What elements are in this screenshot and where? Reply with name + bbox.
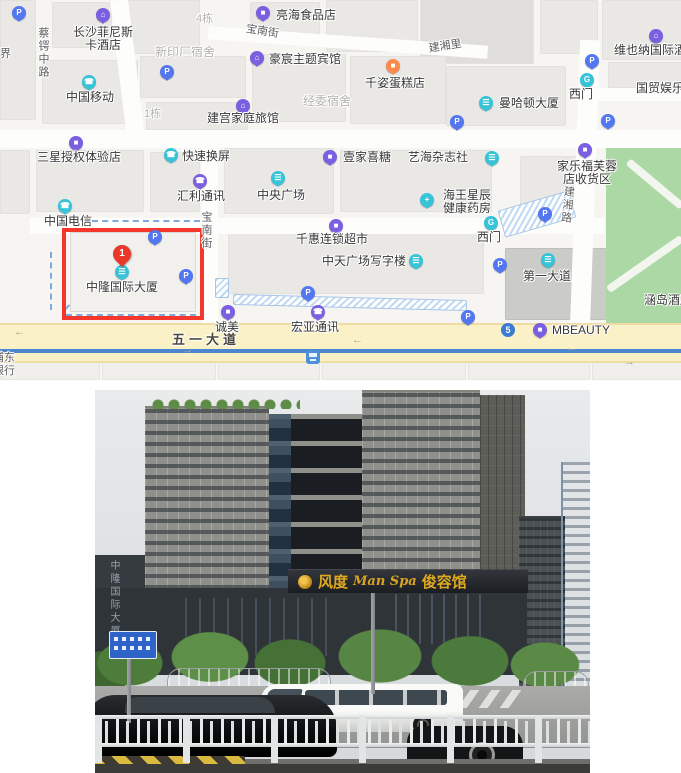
- sign-pole: [127, 657, 131, 723]
- mbeauty-icon[interactable]: ■: [533, 323, 547, 337]
- parking-icon[interactable]: P: [493, 258, 507, 272]
- manhattan-tower-icon[interactable]: ☰: [479, 96, 493, 110]
- roof-plants: [150, 399, 300, 409]
- zhongyang-plaza-icon[interactable]: ☰: [271, 171, 285, 185]
- mbeauty-label[interactable]: MBEAUTY: [552, 324, 610, 337]
- bus-stop-icon[interactable]: [306, 350, 320, 364]
- spa-sign-suffix: 俊容馆: [422, 571, 467, 592]
- zhongyang-plaza-label[interactable]: 中央广场: [257, 189, 305, 202]
- road-arrow: →: [624, 356, 635, 368]
- parking-icon[interactable]: P: [12, 6, 26, 20]
- road-arrow: ←: [352, 334, 363, 346]
- samsung-experience-store-label[interactable]: 三星授权体验店: [37, 151, 121, 164]
- metro-line-5-badge[interactable]: 5: [501, 323, 515, 337]
- van-windows: [305, 690, 447, 705]
- street-photo: 中隆国际大厦 风度 Man Spa 俊容馆: [95, 390, 590, 773]
- china-mobile-icon[interactable]: ☎: [82, 75, 96, 89]
- zhongtian-office-tower-icon[interactable]: ☰: [409, 254, 423, 268]
- map-marker-pin[interactable]: 1: [109, 241, 134, 266]
- area-building-4: 4栋: [196, 13, 213, 26]
- handao-hotel-label[interactable]: 涵岛酒店: [644, 294, 681, 307]
- main-building-left-wing: [145, 406, 269, 598]
- road-arrow: ←: [566, 342, 577, 354]
- sign-text-row: [114, 646, 152, 650]
- haochen-theme-hotel-label[interactable]: 豪宸主题宾馆: [269, 53, 341, 66]
- chengmei-icon[interactable]: ■: [221, 305, 235, 319]
- street-name-sign: [109, 631, 157, 659]
- ximen-gate-north-icon[interactable]: G: [580, 73, 594, 87]
- hongya-comm-label[interactable]: 宏亚通讯: [291, 321, 339, 334]
- street-baonan-vertical: 宝南街: [199, 211, 212, 250]
- lianghai-food-store-icon[interactable]: ■: [256, 6, 270, 20]
- huili-comm-icon[interactable]: ☎: [193, 174, 207, 188]
- jiangong-family-inn-label[interactable]: 建宫家庭旅馆: [207, 112, 279, 125]
- ximen-gate-west-icon[interactable]: G: [484, 216, 498, 230]
- kuaisu-huanping-label[interactable]: 快速换屏: [182, 150, 230, 163]
- spa-sign-band: 风度 Man Spa 俊容馆: [288, 569, 528, 593]
- chengmei-label[interactable]: 诚美: [215, 321, 239, 334]
- qianzi-cake-shop-label[interactable]: 千姿蛋糕店: [365, 77, 425, 90]
- parking-icon[interactable]: P: [148, 230, 162, 244]
- ximen-gate-west-label[interactable]: 西门: [477, 231, 501, 244]
- vienna-international-hotel-label[interactable]: 维也纳国际酒店: [614, 44, 681, 57]
- road-arrow: →: [182, 344, 193, 356]
- sedan-glass: [125, 697, 275, 713]
- area-xinyinchang-dorm: 新印厂宿舍: [155, 46, 215, 59]
- samsung-experience-store-icon[interactable]: ■: [69, 136, 83, 150]
- label-pudong: 浦东: [0, 352, 15, 365]
- yihai-magazine-label[interactable]: 艺海杂志社: [408, 151, 468, 164]
- street-baonan-top: 宝南街: [245, 23, 280, 41]
- lianghai-food-store-label[interactable]: 亮海食品店: [276, 9, 336, 22]
- parking-icon[interactable]: P: [179, 269, 193, 283]
- vertical-building-sign: 中隆国际大厦: [107, 560, 121, 640]
- qianzi-cake-shop-icon[interactable]: ■: [386, 59, 400, 73]
- street-caie-middle-road: 蔡锷中路: [36, 27, 49, 79]
- area-jingwei-dorm: 经委宿舍: [303, 95, 351, 108]
- changsha-feinisi-hotel-icon[interactable]: ⌂: [96, 8, 110, 22]
- china-mobile-label[interactable]: 中国移动: [66, 91, 114, 104]
- kuaisu-huanping-icon[interactable]: ☎: [164, 148, 178, 162]
- manhattan-tower-label[interactable]: 曼哈顿大厦: [499, 97, 559, 110]
- spa-logo-icon: [298, 575, 312, 589]
- spa-sign-script: Man Spa: [353, 574, 417, 589]
- parking-icon[interactable]: P: [301, 286, 315, 300]
- china-telecom-icon[interactable]: ☎: [58, 199, 72, 213]
- parking-icon[interactable]: P: [585, 54, 599, 68]
- zhongtian-office-tower-label[interactable]: 中天广场写字楼: [322, 255, 406, 268]
- guomao-entertainment-label[interactable]: 国贸娱乐: [636, 82, 681, 95]
- poi-layer: ⌂长沙菲尼斯卡酒店■亮海食品店⌂豪宸主题宾馆■千姿蛋糕店⌂维也纳国际酒店☎中国移…: [0, 0, 681, 380]
- qianhui-chain-market-label[interactable]: 千惠连锁超市: [296, 233, 368, 246]
- road-arrow: ←: [14, 326, 25, 338]
- street-jianxiangli: 建湘里: [428, 38, 463, 56]
- ximen-gate-north-label[interactable]: 西门: [569, 88, 593, 101]
- carrefour-furong-pickup-label[interactable]: 家乐福芙蓉店收货区: [556, 160, 618, 186]
- map-panel[interactable]: 5 1 ⌂长沙菲尼斯卡酒店■亮海食品店⌂豪宸主题宾馆■千姿蛋糕店⌂维也纳国际酒店…: [0, 0, 681, 380]
- diyi-dadao-icon[interactable]: ☰: [541, 253, 555, 267]
- label-jie: 界: [0, 48, 11, 61]
- carrefour-furong-pickup-icon[interactable]: ■: [578, 143, 592, 157]
- parking-icon[interactable]: P: [601, 114, 615, 128]
- pedestrian-fence: [95, 715, 590, 767]
- screenshot-root: 5 1 ⌂长沙菲尼斯卡酒店■亮海食品店⌂豪宸主题宾馆■千姿蛋糕店⌂维也纳国际酒店…: [0, 0, 681, 773]
- yijia-xitang-icon[interactable]: ■: [323, 150, 337, 164]
- parking-icon[interactable]: P: [450, 115, 464, 129]
- neptunus-pharmacy-label[interactable]: 海王星辰健康药房: [441, 189, 493, 215]
- huili-comm-label[interactable]: 汇利通讯: [177, 190, 225, 203]
- neptunus-pharmacy-icon[interactable]: +: [420, 193, 434, 207]
- qianhui-chain-market-icon[interactable]: ■: [329, 219, 343, 233]
- china-telecom-label[interactable]: 中国电信: [44, 215, 92, 228]
- hongya-comm-icon[interactable]: ☎: [311, 305, 325, 319]
- parking-icon[interactable]: P: [538, 207, 552, 221]
- spa-sign-brand: 风度: [318, 571, 348, 592]
- zhonglong-tower-icon[interactable]: ☰: [115, 265, 129, 279]
- recess-glass: [269, 414, 291, 594]
- main-building-center-recess: [269, 414, 362, 594]
- street-lamp-pole: [371, 576, 375, 694]
- area-building-1: 1栋: [144, 108, 161, 121]
- diyi-dadao-label[interactable]: 第一大道: [523, 270, 571, 283]
- parking-icon[interactable]: P: [160, 65, 174, 79]
- yihai-magazine-icon[interactable]: ☰: [485, 151, 499, 165]
- sign-text-row: [114, 637, 152, 641]
- fence-posts: [95, 715, 590, 763]
- changsha-feinisi-hotel-label[interactable]: 长沙菲尼斯卡酒店: [71, 26, 135, 52]
- parking-icon[interactable]: P: [461, 310, 475, 324]
- label-bank: 银行: [0, 365, 15, 378]
- yijia-xitang-label[interactable]: 壹家喜糖: [343, 151, 391, 164]
- street-jianxiang-road: 建湘路: [558, 185, 575, 225]
- haochen-theme-hotel-icon[interactable]: ⌂: [250, 51, 264, 65]
- main-building-right-wing: [362, 390, 480, 597]
- vienna-international-hotel-icon[interactable]: ⌂: [649, 29, 663, 43]
- marker-number: 1: [113, 245, 131, 263]
- zhonglong-tower-label[interactable]: 中隆国际大厦: [86, 281, 158, 294]
